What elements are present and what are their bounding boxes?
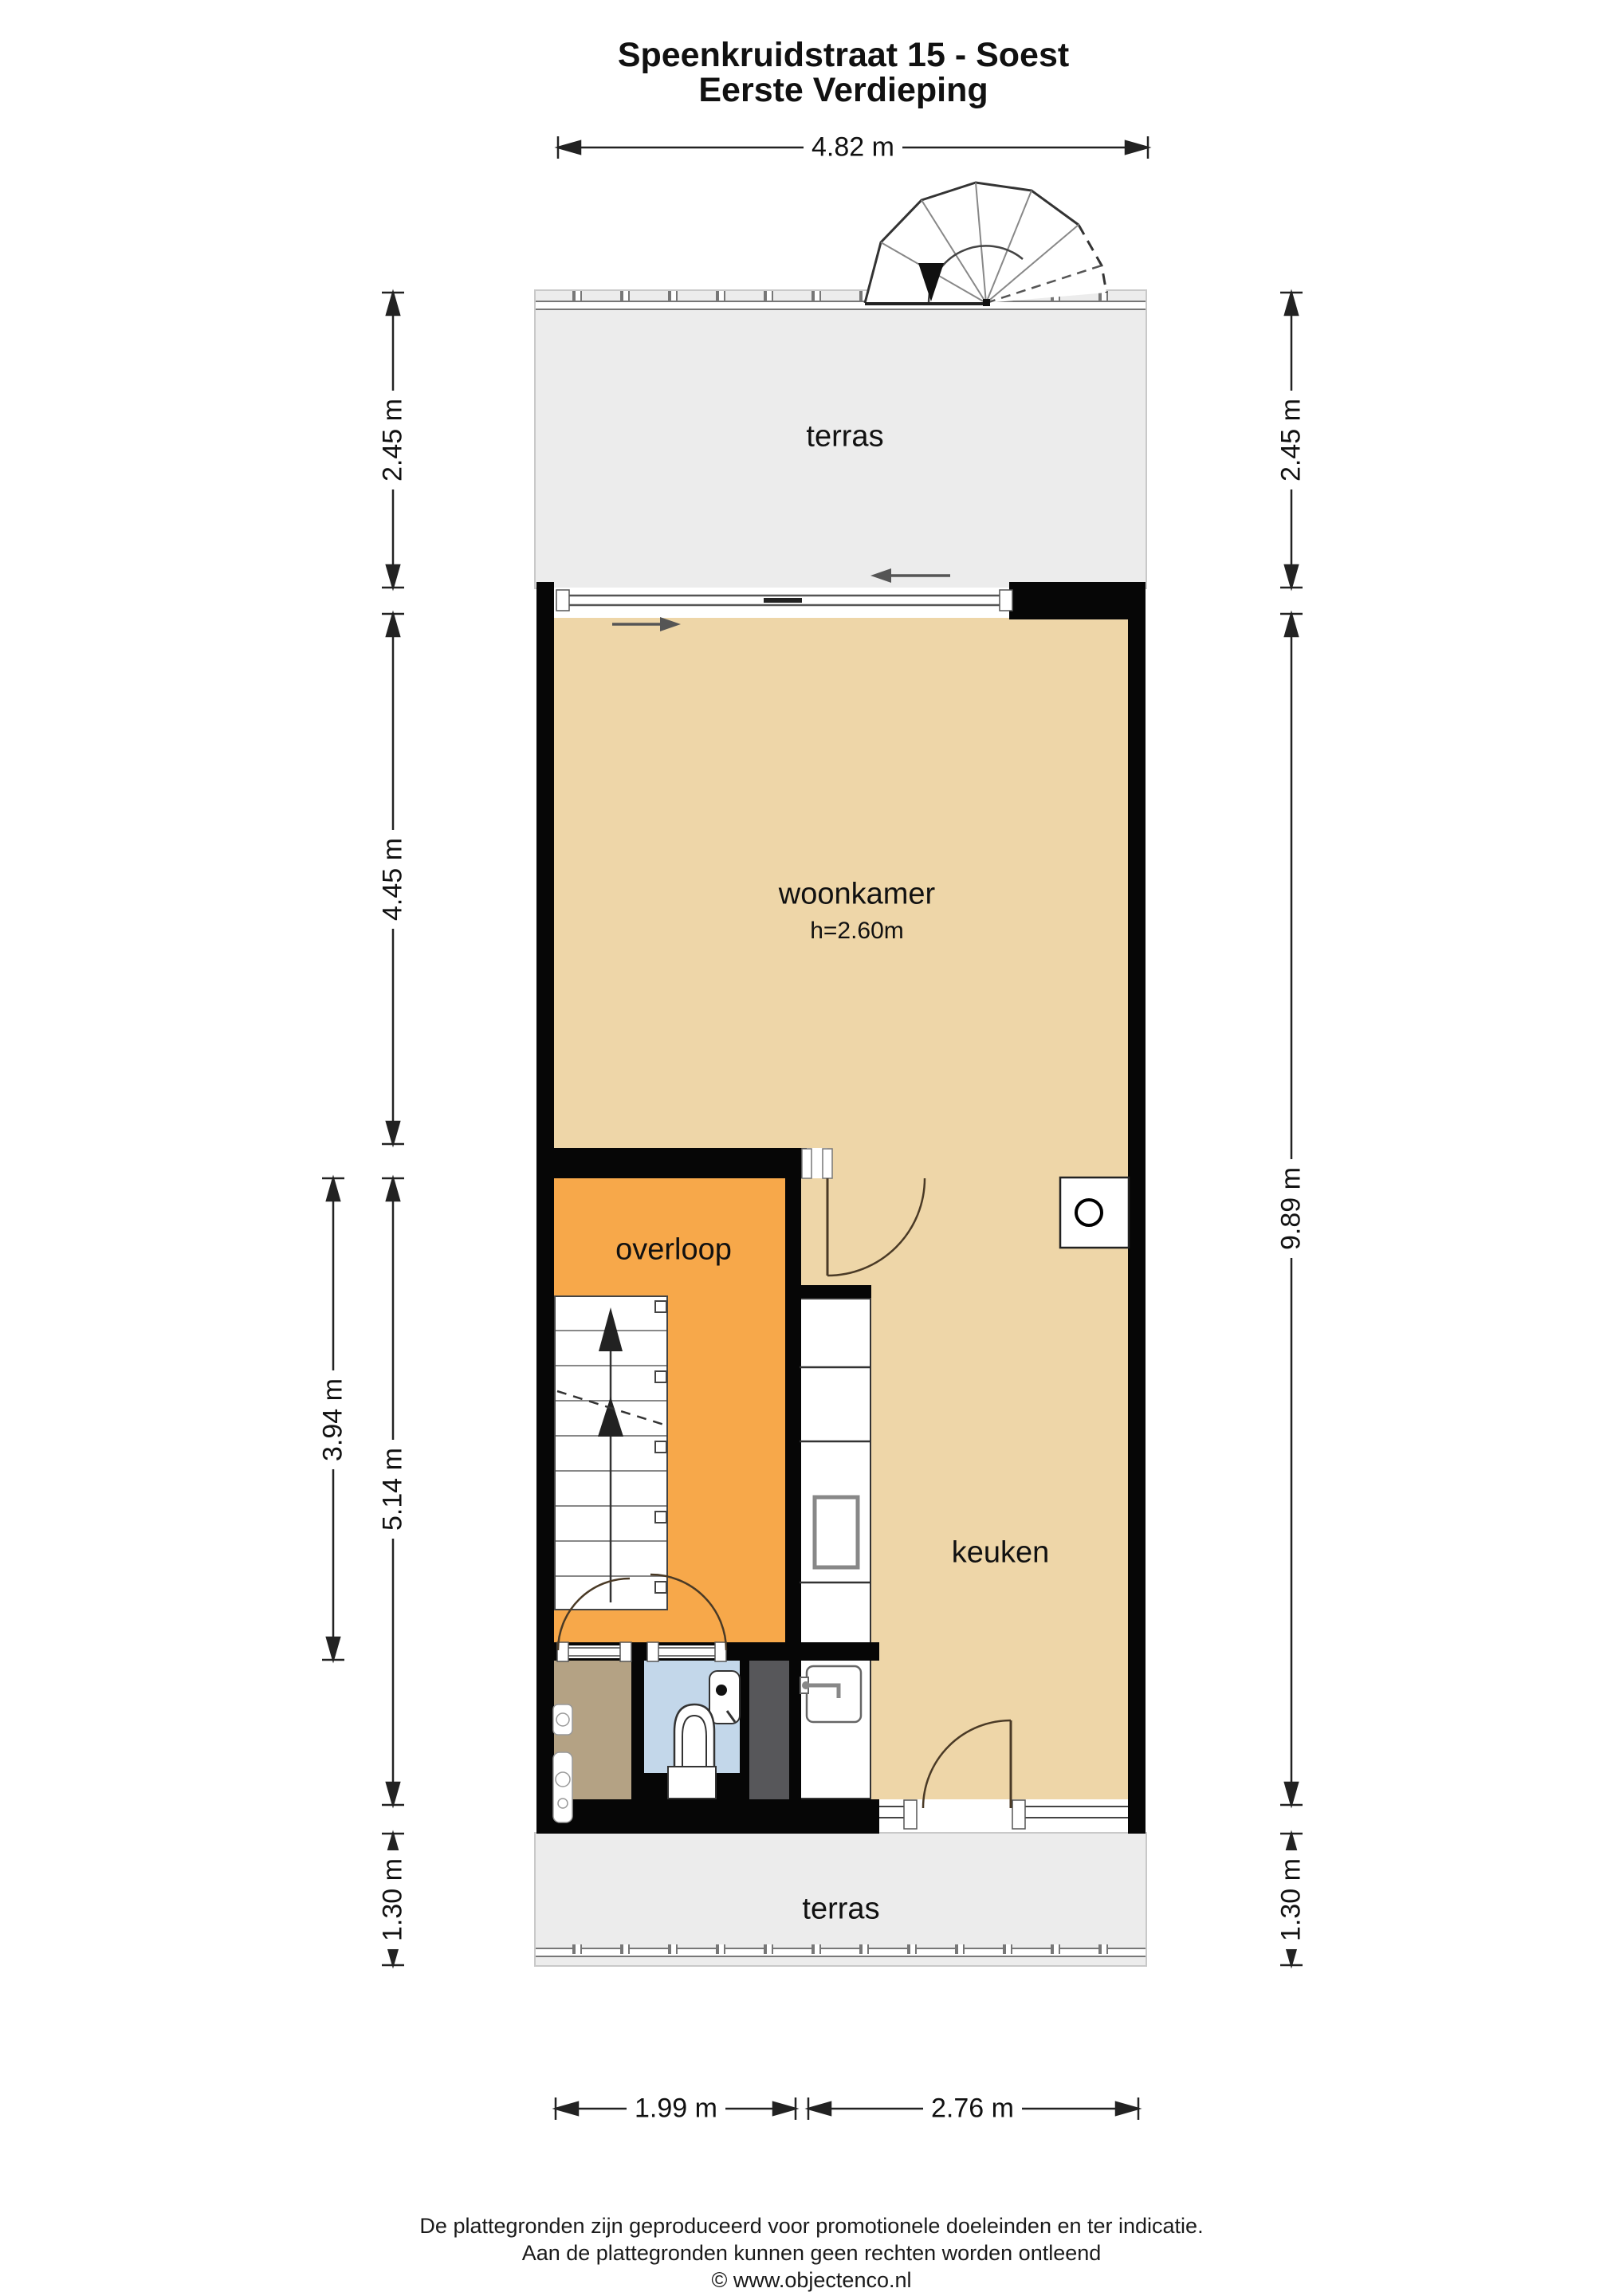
shaft <box>749 1661 789 1799</box>
kitchen-window-strip <box>879 1799 1128 1834</box>
dim-left-terrace-bottom: 1.30 m <box>376 1850 411 1949</box>
room-label-terrace-bottom: terras <box>802 1893 879 1927</box>
dim-left-terrace-top: 2.45 m <box>376 391 411 489</box>
footer-line3: © www.objectenco.nl <box>253 2267 1370 2294</box>
dim-left-landing: 5.14 m <box>376 1440 411 1539</box>
room-label-terrace-top: terras <box>806 420 883 454</box>
terrace-top-railing <box>536 291 1146 309</box>
wall-top-right-block <box>1009 582 1146 619</box>
page-title: Speenkruidstraat 15 - Soest Eerste Verdi… <box>325 38 1362 108</box>
floorplan-page: Speenkruidstraat 15 - Soest Eerste Verdi… <box>0 0 1623 2296</box>
wall-storage-toilet <box>631 1661 644 1799</box>
dim-right-terrace-bottom: 1.30 m <box>1275 1850 1309 1949</box>
room-label-landing: overloop <box>615 1233 732 1268</box>
storage-room-floor <box>554 1661 631 1799</box>
dim-right-main: 9.89 m <box>1275 1159 1309 1258</box>
footer-line1: De plattegronden zijn geproduceerd voor … <box>253 2213 1370 2240</box>
dim-right-terrace-top: 2.45 m <box>1275 391 1309 489</box>
dim-left-stairs: 3.94 m <box>316 1370 351 1469</box>
wall-bottom <box>536 1799 879 1834</box>
spiral-staircase <box>865 183 1106 306</box>
title-line2: Eerste Verdieping <box>325 73 1362 108</box>
kitchen-counter <box>800 1298 871 1799</box>
counter-top-cap <box>800 1285 871 1298</box>
wall-landing-rooms <box>536 1642 879 1661</box>
wall-right <box>1128 582 1146 1834</box>
toilet-corner-block-left <box>644 1773 668 1799</box>
toilet-corner-block-right <box>716 1773 740 1799</box>
footer-disclaimer: De plattegronden zijn geproduceerd voor … <box>253 2213 1370 2294</box>
staircase <box>554 1295 668 1610</box>
dim-bottom-right: 2.76 m <box>923 2092 1022 2126</box>
room-label-living-height: h=2.60m <box>810 918 904 945</box>
wall-living-landing <box>536 1148 807 1178</box>
room-label-living: woonkamer <box>779 878 935 912</box>
dim-left-living: 4.45 m <box>376 830 411 929</box>
dim-bottom-left: 1.99 m <box>627 2092 725 2126</box>
door-opening-landing <box>807 1148 827 1178</box>
footer-line2: Aan de plattegronden kunnen geen rechten… <box>253 2240 1370 2267</box>
wall-toilet-shaft <box>740 1661 749 1799</box>
room-label-kitchen: keuken <box>952 1536 1050 1571</box>
terrace-bottom-railing <box>536 1948 1146 1965</box>
dim-top-width: 4.82 m <box>804 131 902 165</box>
title-line1: Speenkruidstraat 15 - Soest <box>325 38 1362 73</box>
